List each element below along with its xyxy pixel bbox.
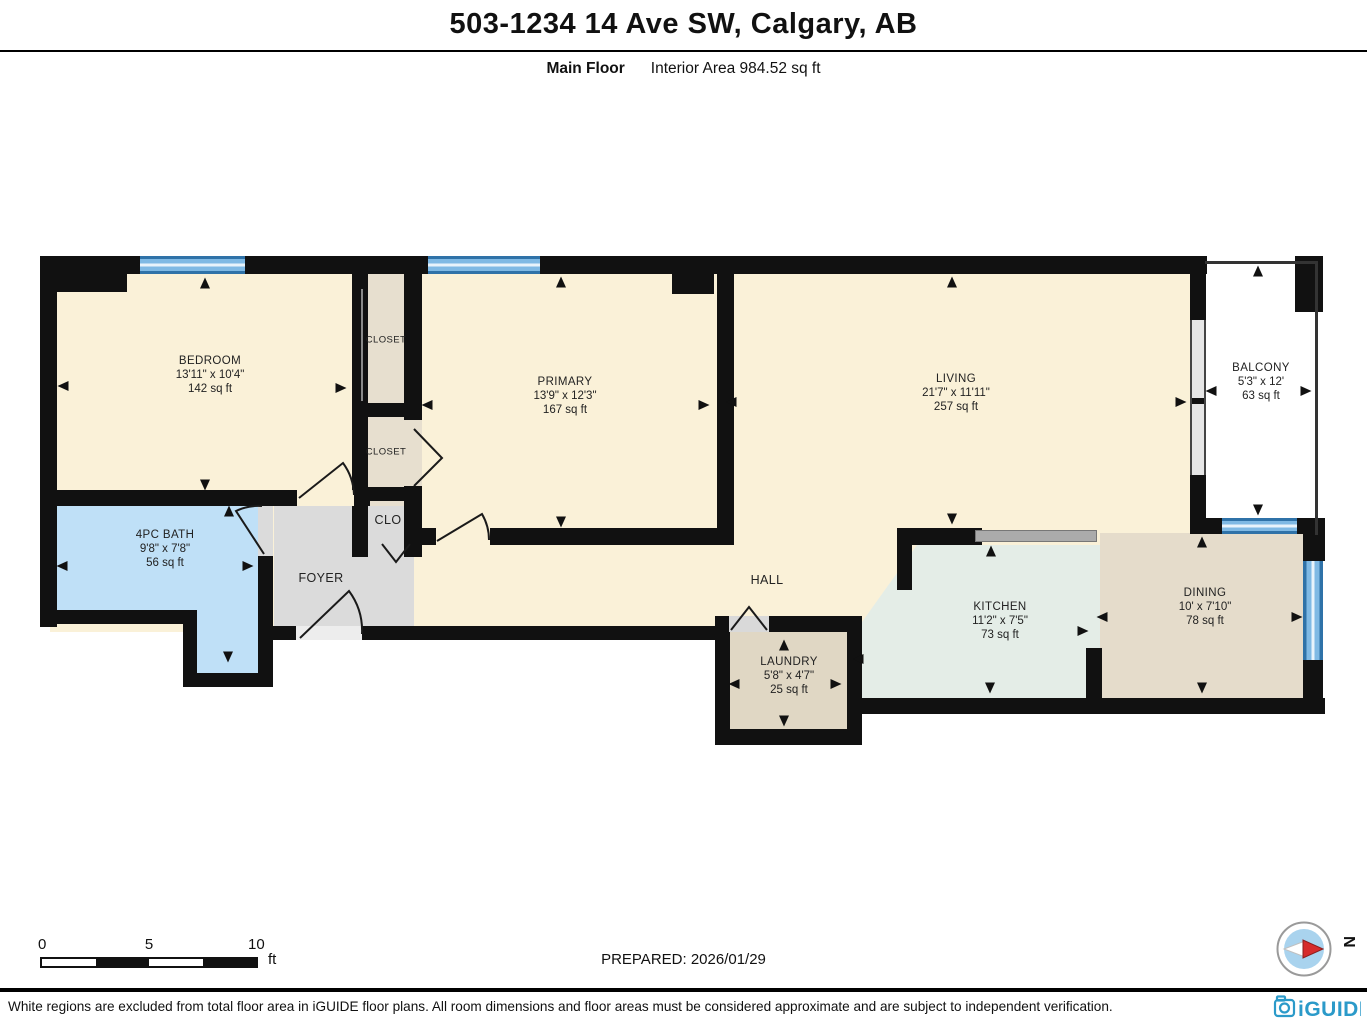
door-gap-bedroom bbox=[297, 490, 354, 506]
balcony-sliding-door bbox=[1190, 320, 1206, 475]
room-label-closet1: CLOSET bbox=[366, 335, 406, 346]
wall-segment bbox=[1190, 256, 1206, 320]
kitchen-counter bbox=[975, 530, 1097, 542]
wall-segment bbox=[847, 616, 862, 745]
room-label-foyer: FOYER bbox=[298, 571, 343, 585]
footer-disclaimer: White regions are excluded from total fl… bbox=[8, 999, 1113, 1014]
dimension-arrow bbox=[1206, 386, 1217, 396]
wall-segment bbox=[404, 274, 422, 544]
dimension-arrow bbox=[831, 679, 842, 689]
room-label-bath: 4PC BATH9'8" x 7'8"56 sq ft bbox=[136, 528, 195, 570]
dimension-arrow bbox=[853, 654, 864, 664]
door-gap-entry bbox=[296, 626, 362, 640]
wall-segment bbox=[258, 556, 273, 687]
dimension-arrow bbox=[422, 400, 433, 410]
dimension-arrow bbox=[1078, 626, 1089, 636]
door-gap-laundry bbox=[729, 616, 769, 632]
wall-segment bbox=[40, 256, 57, 627]
window-bedroom bbox=[140, 256, 245, 274]
dimension-arrow bbox=[57, 561, 68, 571]
prepared-date: PREPARED: 2026/01/29 bbox=[0, 951, 1367, 968]
dimension-arrow bbox=[1253, 266, 1263, 277]
room-label-dining: DINING10' x 7'10"78 sq ft bbox=[1179, 586, 1232, 628]
room-label-clo: CLO bbox=[375, 513, 402, 527]
dimension-arrow bbox=[556, 517, 566, 528]
room-fill-bath-ext bbox=[197, 610, 258, 673]
dimension-arrow bbox=[1197, 537, 1207, 548]
dimension-arrow bbox=[200, 480, 210, 491]
wall-segment bbox=[715, 729, 862, 745]
floor-plan: BEDROOM13'11" x 10'4"142 sq ftCLOSETCLOS… bbox=[0, 0, 1367, 1023]
dimension-arrow bbox=[243, 561, 254, 571]
wall-segment bbox=[1295, 256, 1323, 312]
dimension-arrow bbox=[985, 683, 995, 694]
dimension-arrow bbox=[556, 277, 566, 288]
dimension-arrow bbox=[1253, 505, 1263, 516]
balcony-outline bbox=[1205, 261, 1318, 264]
dimension-arrow bbox=[1097, 612, 1108, 622]
window-primary bbox=[428, 256, 540, 274]
dimension-arrow bbox=[336, 383, 347, 393]
wall-segment bbox=[40, 610, 197, 624]
wall-segment bbox=[57, 274, 127, 292]
room-label-closet2: CLOSET bbox=[366, 447, 406, 458]
window-balcony bbox=[1222, 518, 1297, 534]
wall-segment bbox=[847, 698, 1325, 714]
balcony-outline bbox=[1315, 261, 1318, 535]
dimension-arrow bbox=[1292, 612, 1303, 622]
iguide-wordmark: iGUIDE bbox=[1298, 998, 1361, 1021]
dimension-arrow bbox=[1301, 386, 1312, 396]
dimension-arrow bbox=[947, 277, 957, 288]
dimension-arrow bbox=[1197, 683, 1207, 694]
dimension-arrow bbox=[200, 278, 210, 289]
dimension-arrow bbox=[986, 546, 996, 557]
dimension-arrow bbox=[223, 652, 233, 663]
dimension-arrow bbox=[58, 381, 69, 391]
wall-segment bbox=[1086, 648, 1102, 698]
dimension-arrow bbox=[699, 400, 710, 410]
door-gap-closet bbox=[404, 420, 422, 486]
room-label-primary: PRIMARY13'9" x 12'3"167 sq ft bbox=[533, 375, 596, 417]
room-label-living: LIVING21'7" x 11'11"257 sq ft bbox=[922, 372, 990, 414]
iguide-logo: iGUIDE bbox=[1273, 995, 1361, 1026]
dimension-arrow bbox=[726, 397, 737, 407]
dimension-arrow bbox=[224, 506, 234, 517]
iguide-camera-icon bbox=[1275, 997, 1294, 1017]
compass-icon: N bbox=[1276, 921, 1356, 979]
room-label-hall: HALL bbox=[751, 573, 784, 587]
dimension-arrow bbox=[779, 640, 789, 651]
room-label-kitchen: KITCHEN11'2" x 7'5"73 sq ft bbox=[972, 600, 1028, 642]
wall-segment bbox=[183, 610, 197, 677]
dimension-arrow bbox=[1176, 397, 1187, 407]
room-label-bedroom: BEDROOM13'11" x 10'4"142 sq ft bbox=[176, 354, 245, 396]
dimension-arrow bbox=[779, 716, 789, 727]
room-label-laundry: LAUNDRY5'8" x 4'7"25 sq ft bbox=[760, 655, 818, 697]
door-gap-bath bbox=[258, 506, 273, 556]
window-dining bbox=[1303, 561, 1323, 660]
wall-segment bbox=[672, 274, 714, 294]
room-label-balcony: BALCONY5'3" x 12'63 sq ft bbox=[1232, 361, 1290, 403]
door-gap-clo bbox=[368, 541, 404, 557]
north-label: N bbox=[1340, 936, 1356, 948]
footer-divider bbox=[0, 988, 1367, 992]
wall-segment bbox=[897, 528, 912, 590]
dimension-arrow bbox=[947, 514, 957, 525]
dimension-arrow bbox=[729, 679, 740, 689]
door-gap-primary bbox=[436, 528, 490, 545]
wall-segment bbox=[1190, 475, 1206, 518]
